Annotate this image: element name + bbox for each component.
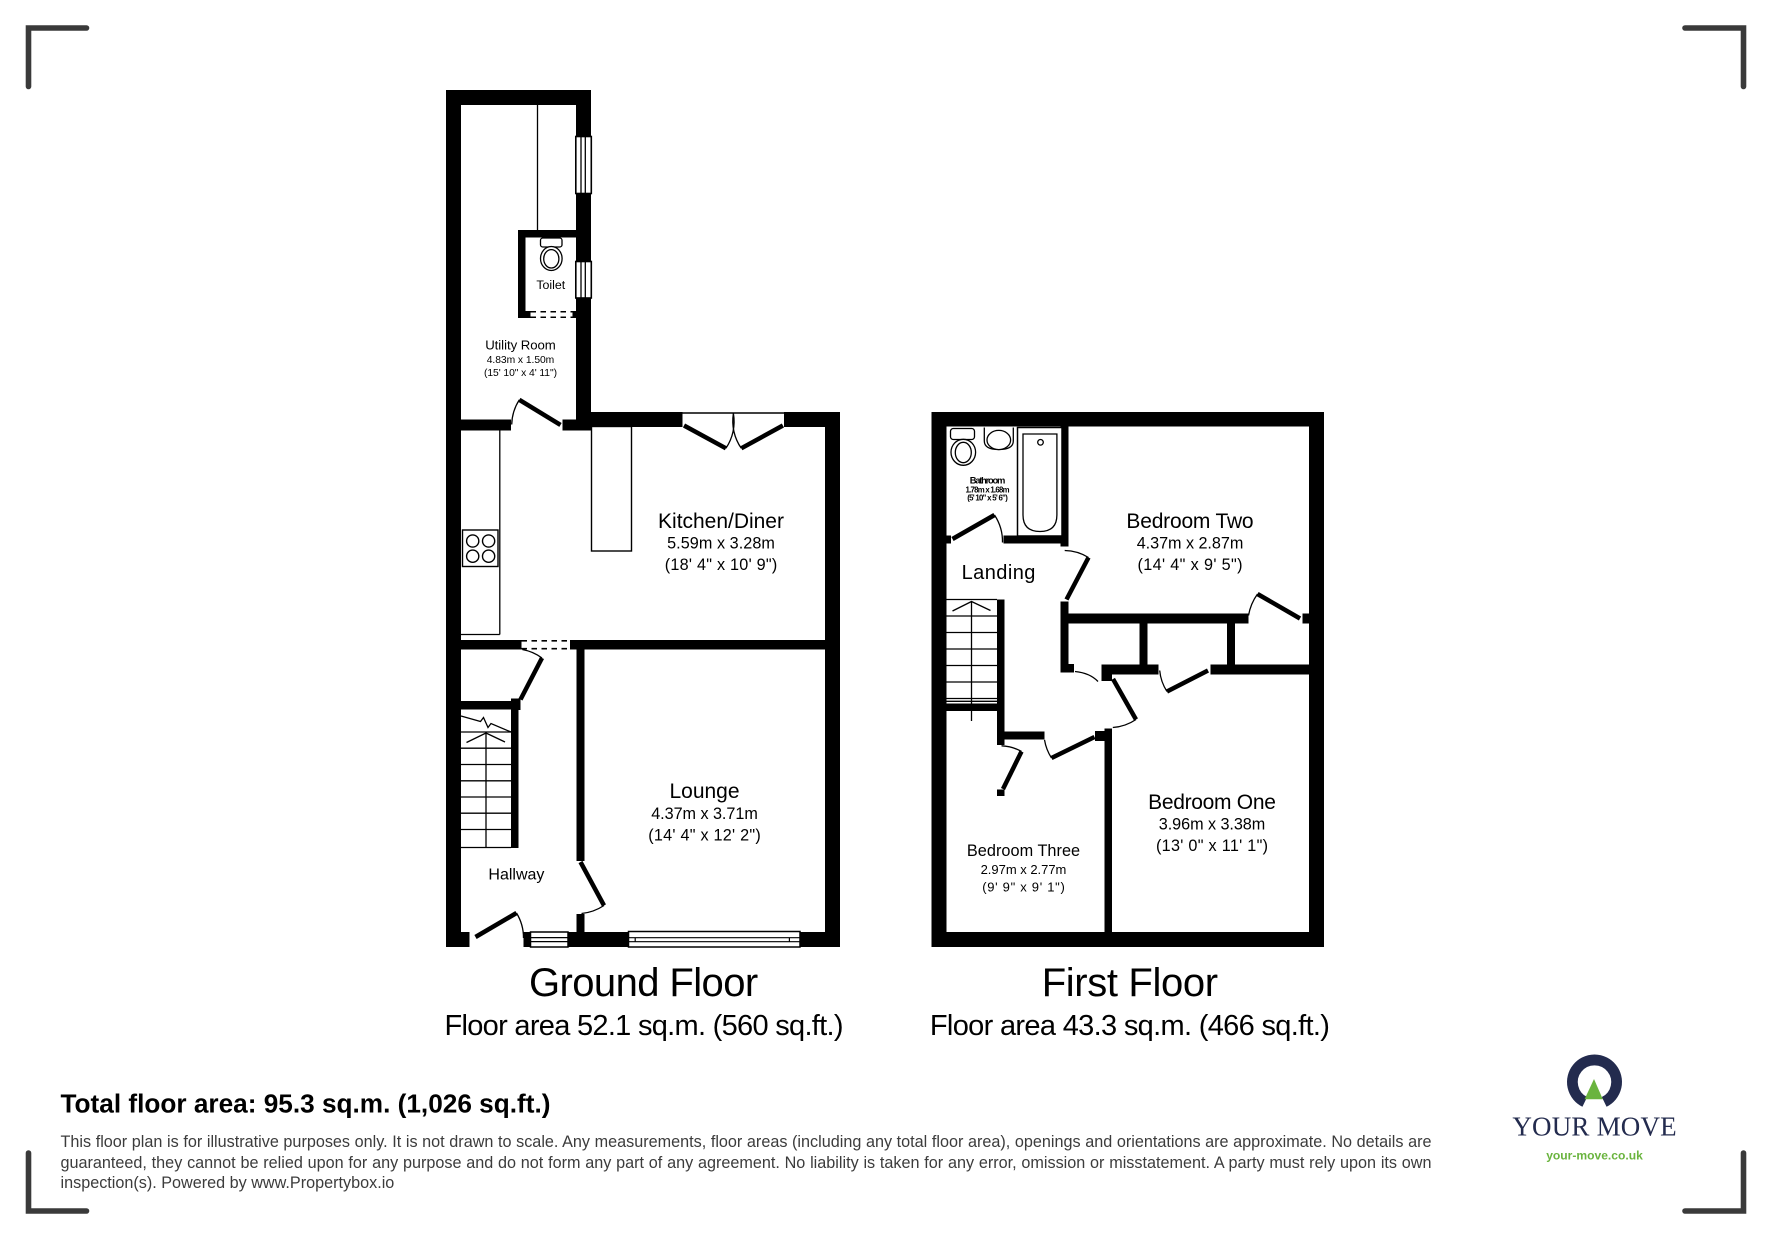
svg-text:Ground Floor: Ground Floor <box>529 961 758 1005</box>
svg-text:(5' 10" x 5' 6"): (5' 10" x 5' 6") <box>967 494 1008 503</box>
svg-text:Total floor area: 95.3 sq.m. (: Total floor area: 95.3 sq.m. (1,026 sq.f… <box>61 1089 551 1119</box>
svg-text:Bedroom Three: Bedroom Three <box>967 842 1080 860</box>
svg-text:4.83m x 1.50m: 4.83m x 1.50m <box>487 355 555 366</box>
svg-text:Bedroom Two: Bedroom Two <box>1126 510 1253 533</box>
svg-text:(13' 0" x 11' 1"): (13' 0" x 11' 1") <box>1156 837 1268 855</box>
svg-text:Utility Room: Utility Room <box>485 338 556 353</box>
svg-text:Bathroom: Bathroom <box>970 475 1006 486</box>
svg-text:(15' 10" x 4' 11"): (15' 10" x 4' 11") <box>484 368 557 379</box>
svg-text:YOUR MOVE: YOUR MOVE <box>1512 1111 1676 1141</box>
svg-text:(14' 4" x 9' 5"): (14' 4" x 9' 5") <box>1138 556 1243 574</box>
svg-text:4.37m x 3.71m: 4.37m x 3.71m <box>651 805 758 823</box>
svg-text:3.96m x 3.38m: 3.96m x 3.38m <box>1159 815 1266 833</box>
svg-text:5.59m x 3.28m: 5.59m x 3.28m <box>667 534 775 552</box>
svg-text:Landing: Landing <box>962 562 1036 584</box>
svg-text:Toilet: Toilet <box>536 278 565 292</box>
svg-text:Floor area 43.3 sq.m. (466 sq.: Floor area 43.3 sq.m. (466 sq.ft.) <box>930 1010 1330 1042</box>
svg-text:2.97m x 2.77m: 2.97m x 2.77m <box>981 862 1067 877</box>
svg-text:Bedroom One: Bedroom One <box>1148 791 1276 814</box>
svg-text:Hallway: Hallway <box>488 867 544 884</box>
svg-text:4.37m x 2.87m: 4.37m x 2.87m <box>1137 534 1244 552</box>
svg-text:(18' 4" x 10' 9"): (18' 4" x 10' 9") <box>665 556 778 574</box>
svg-text:Floor area 52.1 sq.m. (560 sq.: Floor area 52.1 sq.m. (560 sq.ft.) <box>445 1010 844 1042</box>
svg-text:First Floor: First Floor <box>1042 961 1218 1005</box>
svg-text:Lounge: Lounge <box>670 780 740 803</box>
svg-text:(9' 9" x 9' 1"): (9' 9" x 9' 1") <box>982 880 1065 895</box>
svg-text:Kitchen/Diner: Kitchen/Diner <box>658 510 784 533</box>
svg-text:(14' 4" x 12' 2"): (14' 4" x 12' 2") <box>648 827 761 845</box>
svg-text:your-move.co.uk: your-move.co.uk <box>1546 1149 1643 1163</box>
